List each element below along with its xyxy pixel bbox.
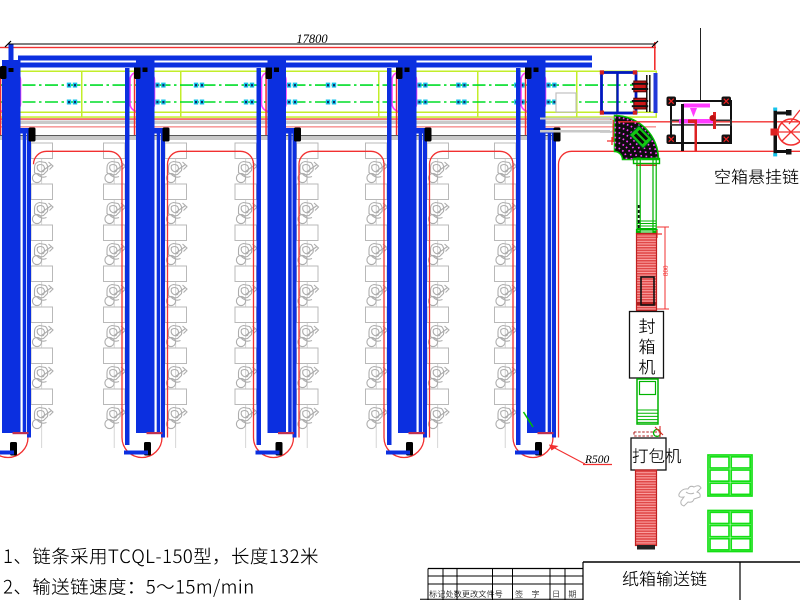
svg-text:800: 800 bbox=[662, 265, 670, 276]
svg-text:R500: R500 bbox=[584, 454, 610, 466]
svg-text:17800: 17800 bbox=[296, 32, 328, 46]
